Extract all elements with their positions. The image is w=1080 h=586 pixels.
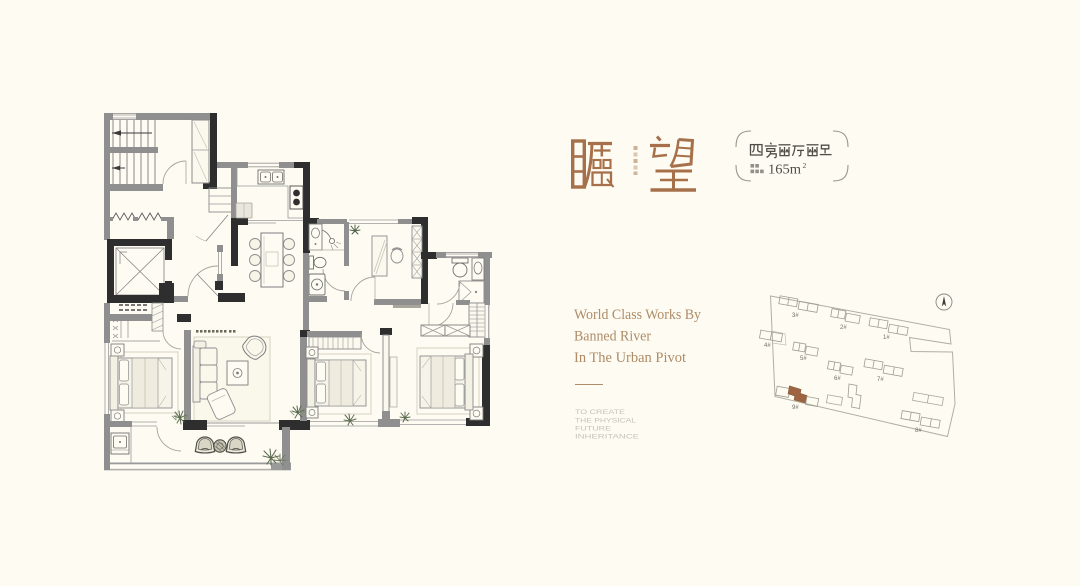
svg-text:9#: 9# (792, 405, 799, 411)
svg-text:Banned River: Banned River (574, 329, 651, 345)
svg-text:8#: 8# (915, 428, 922, 434)
svg-text:TO CREATE: TO CREATE (575, 409, 625, 416)
svg-text:World Class Works By: World Class Works By (574, 307, 701, 323)
svg-text:In The Urban Pivot: In The Urban Pivot (574, 350, 687, 366)
svg-text:THE PHYSICAL: THE PHYSICAL (575, 418, 637, 425)
svg-text:3#: 3# (792, 313, 799, 319)
svg-text:2#: 2# (840, 325, 847, 331)
svg-text:4#: 4# (764, 343, 771, 349)
svg-text:5#: 5# (800, 356, 807, 362)
svg-text:6#: 6# (834, 376, 841, 382)
svg-text:1#: 1# (883, 335, 890, 341)
svg-text:165m: 165m (768, 162, 802, 177)
svg-text:INHERITANCE: INHERITANCE (575, 434, 639, 441)
svg-text:7#: 7# (877, 377, 884, 383)
svg-text:FUTURE: FUTURE (575, 426, 611, 433)
svg-text:2: 2 (803, 161, 807, 170)
